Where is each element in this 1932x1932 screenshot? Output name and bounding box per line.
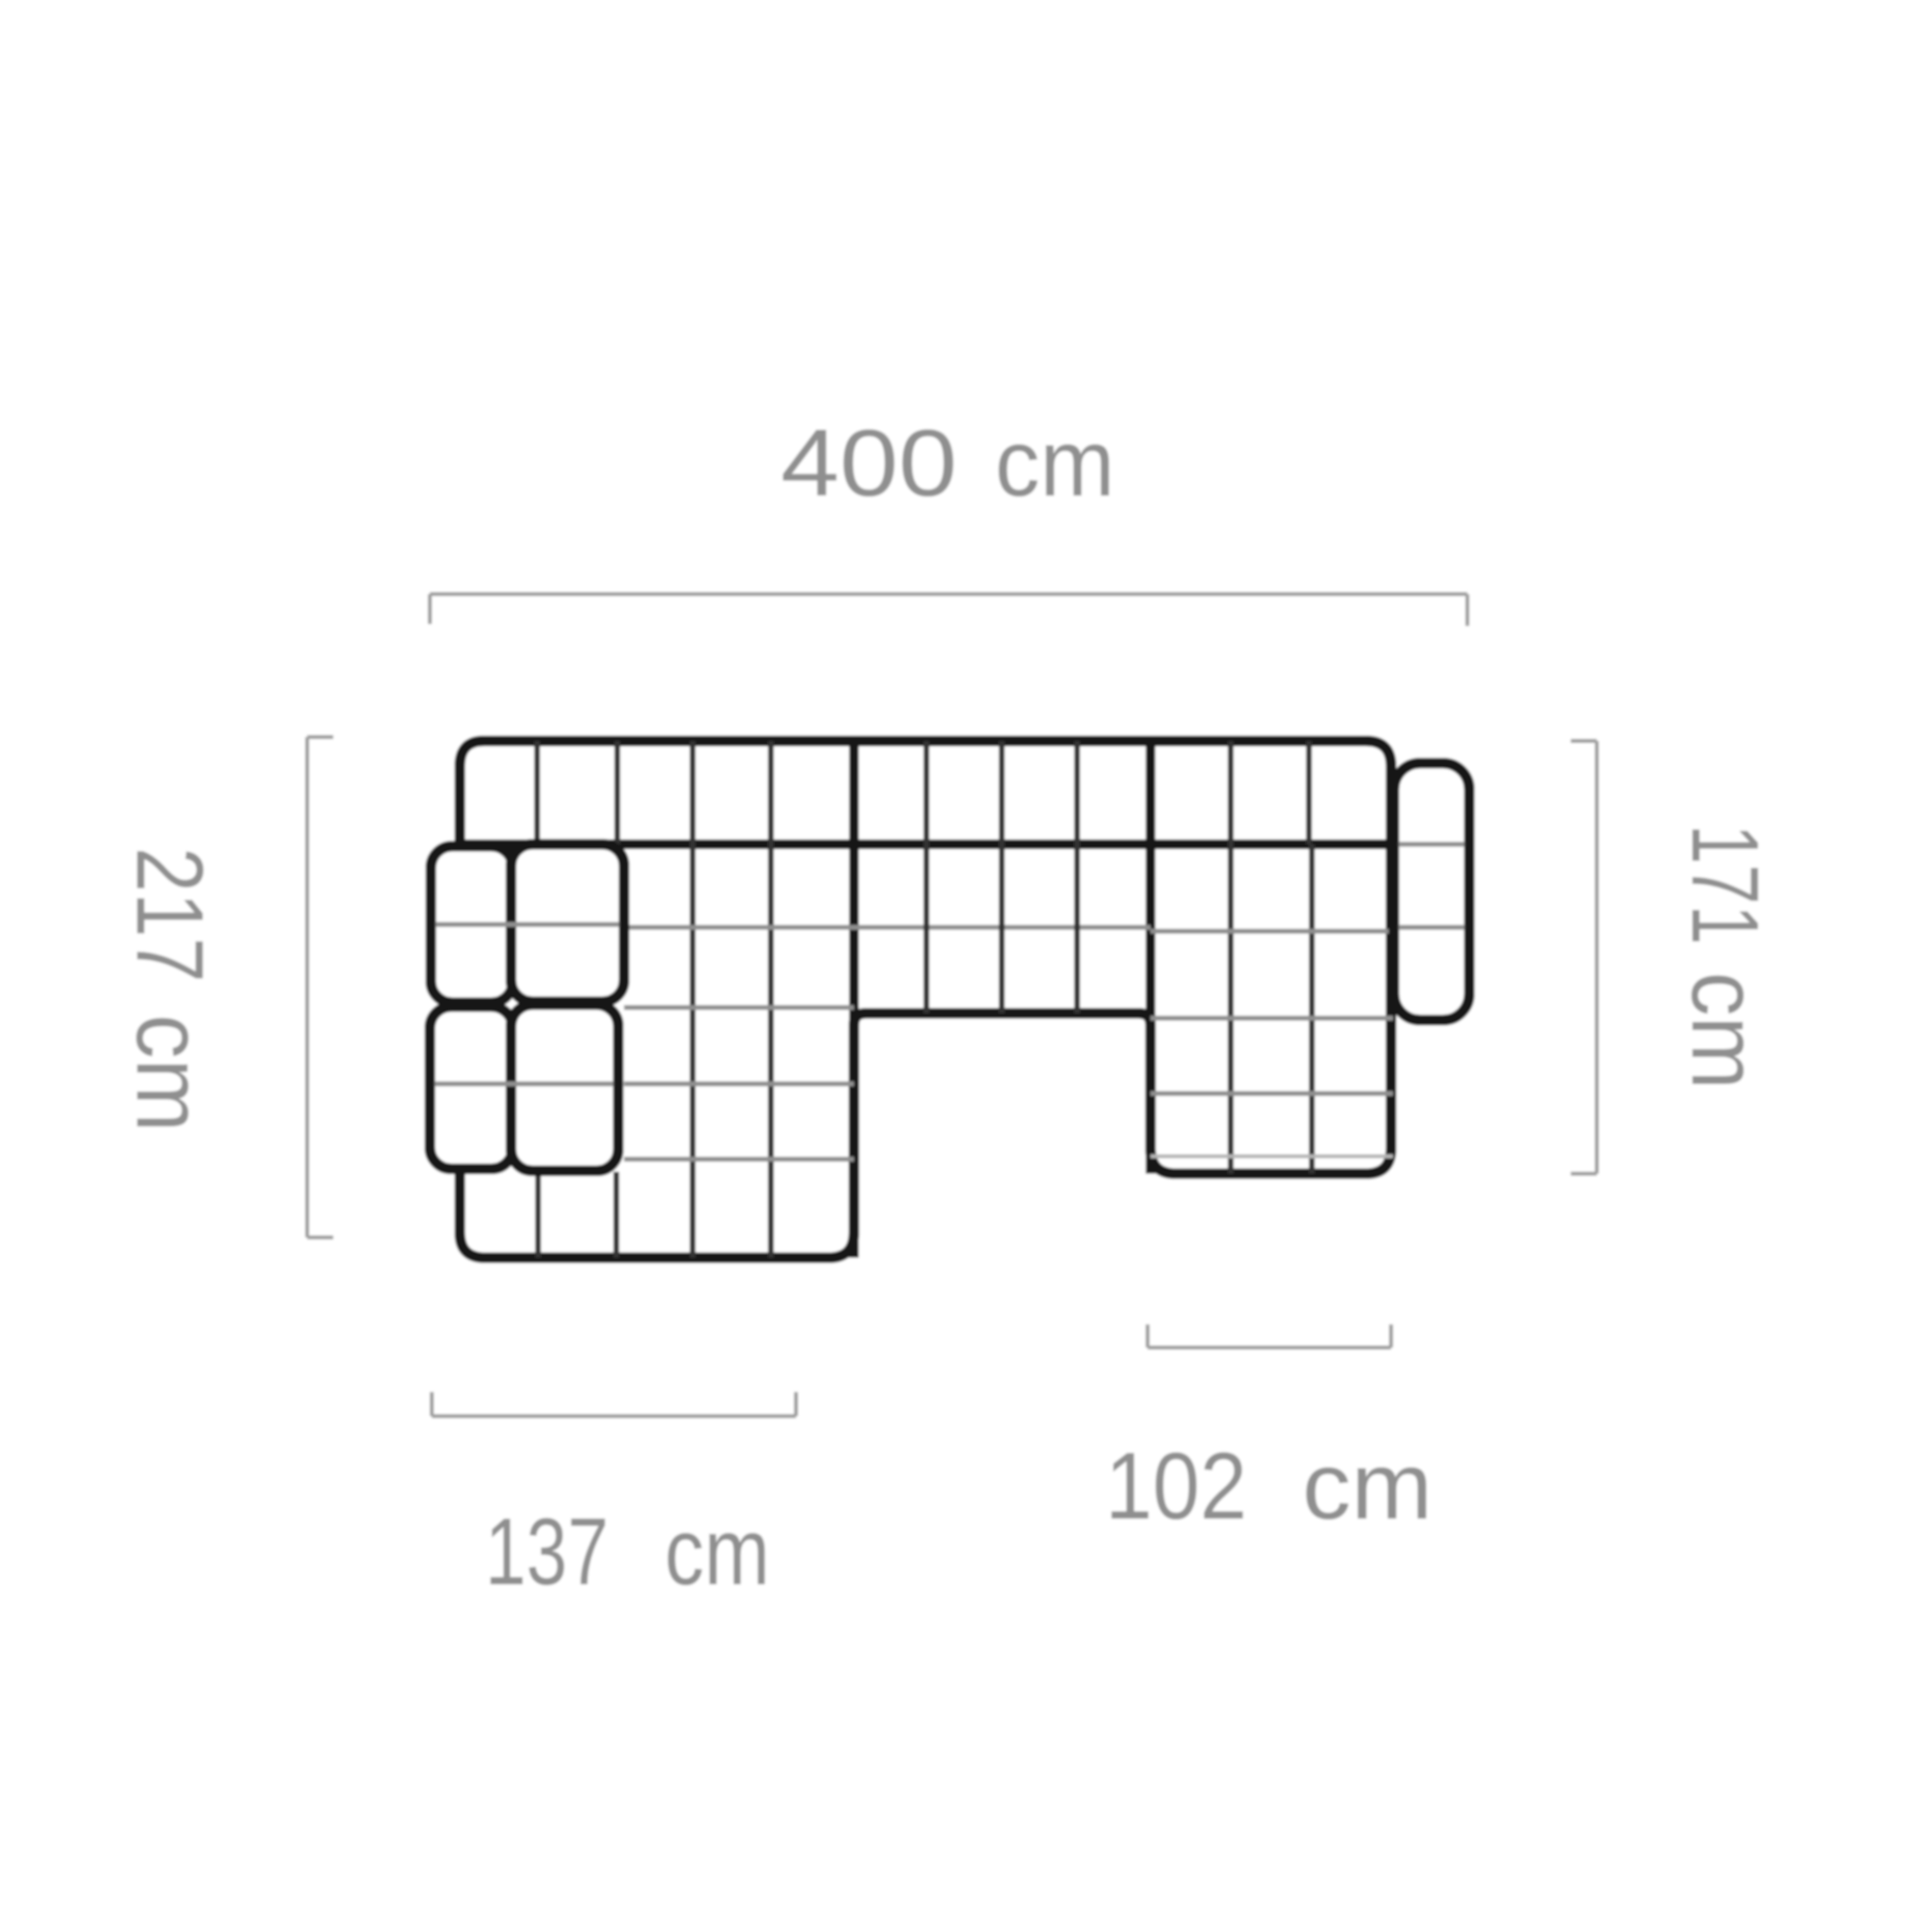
- svg-text:cm: cm: [117, 1014, 223, 1132]
- svg-text:171: 171: [1672, 824, 1778, 945]
- svg-text:217: 217: [117, 847, 223, 982]
- svg-text:cm: cm: [995, 410, 1115, 516]
- svg-text:137: 137: [485, 1498, 609, 1605]
- svg-text:cm: cm: [1672, 972, 1778, 1090]
- svg-text:cm: cm: [665, 1498, 770, 1605]
- svg-text:102: 102: [1105, 1433, 1247, 1539]
- svg-text:400: 400: [781, 410, 957, 516]
- svg-text:cm: cm: [1302, 1433, 1433, 1539]
